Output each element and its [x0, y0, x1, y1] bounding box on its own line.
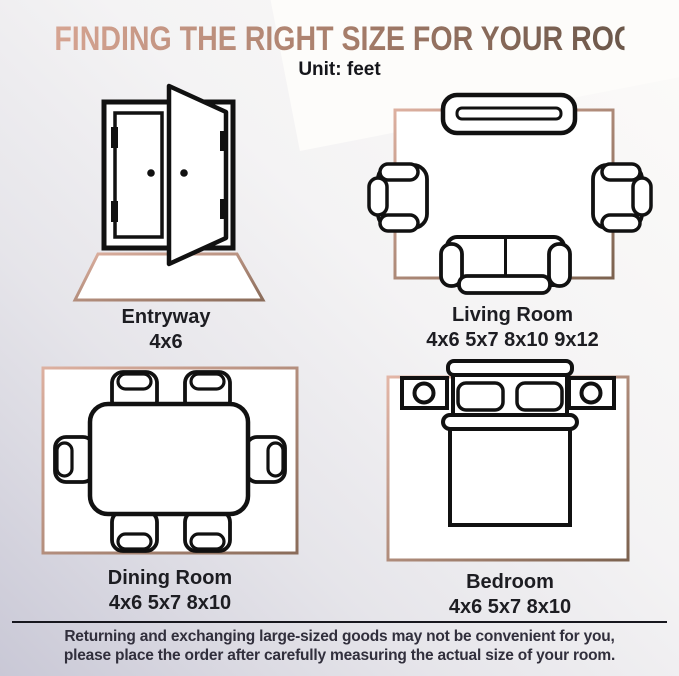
headboard: [448, 361, 572, 375]
rug-size-infographic: FINDING THE RIGHT SIZE FOR YOUR ROOM Uni…: [0, 0, 679, 676]
dining-table-icon: [38, 364, 302, 559]
blanket: [450, 421, 570, 525]
room-sizes-dining-room: 4x6 5x7 8x10: [109, 592, 231, 615]
sofa-icon: [441, 237, 570, 293]
tv-console-icon: [443, 95, 575, 133]
armchair-left-icon: [369, 164, 427, 231]
nightstand-right-icon: [569, 378, 614, 408]
footer-line-2: please place the order after carefully m…: [12, 647, 667, 666]
room-label-bedroom: Bedroom: [466, 571, 554, 594]
room-card-dining-room: Dining Room 4x6 5x7 8x10: [38, 364, 302, 615]
room-card-living-room: Living Room 4x6 5x7 8x10 9x12: [365, 88, 660, 352]
double-door-icon: [60, 80, 272, 310]
blanket-fold: [443, 415, 577, 429]
room-card-entryway: Entryway 4x6: [60, 80, 272, 354]
room-sizes-bedroom: 4x6 5x7 8x10: [449, 596, 571, 619]
footer-note: Returning and exchanging large-sized goo…: [12, 621, 667, 666]
chair-right-icon: [246, 437, 285, 482]
bed-icon: [380, 355, 640, 565]
room-sizes-living-room: 4x6 5x7 8x10 9x12: [426, 329, 598, 352]
nightstand-left-icon: [402, 378, 447, 408]
open-door-panel: [169, 86, 227, 264]
pillow-left-icon: [458, 383, 503, 410]
lamp-icon: [415, 384, 434, 403]
chair-bottom-right-icon: [185, 511, 230, 551]
room-label-entryway: Entryway: [122, 306, 211, 329]
room-label-dining-room: Dining Room: [108, 567, 232, 590]
dining-table-top: [90, 404, 248, 514]
doorknob-icon: [147, 169, 155, 177]
hinge-icon: [220, 131, 227, 151]
hinge-icon: [111, 127, 118, 148]
chair-bottom-left-icon: [112, 511, 157, 551]
hinge-icon: [220, 199, 227, 219]
room-sizes-entryway: 4x6: [149, 331, 182, 354]
lamp-icon: [582, 384, 601, 403]
hinge-icon: [111, 201, 118, 222]
page-title: FINDING THE RIGHT SIZE FOR YOUR ROOM: [54, 20, 624, 59]
doorknob-icon: [180, 169, 188, 177]
armchair-right-icon: [593, 164, 651, 231]
room-card-bedroom: Bedroom 4x6 5x7 8x10: [380, 355, 640, 619]
bed-top-view: [443, 361, 577, 525]
room-label-living-room: Living Room: [452, 304, 573, 327]
living-room-layout-icon: [365, 88, 660, 300]
footer-line-1: Returning and exchanging large-sized goo…: [12, 628, 667, 647]
pillow-right-icon: [517, 383, 562, 410]
unit-label: Unit: feet: [0, 59, 679, 81]
closed-door-panel: [111, 113, 162, 237]
